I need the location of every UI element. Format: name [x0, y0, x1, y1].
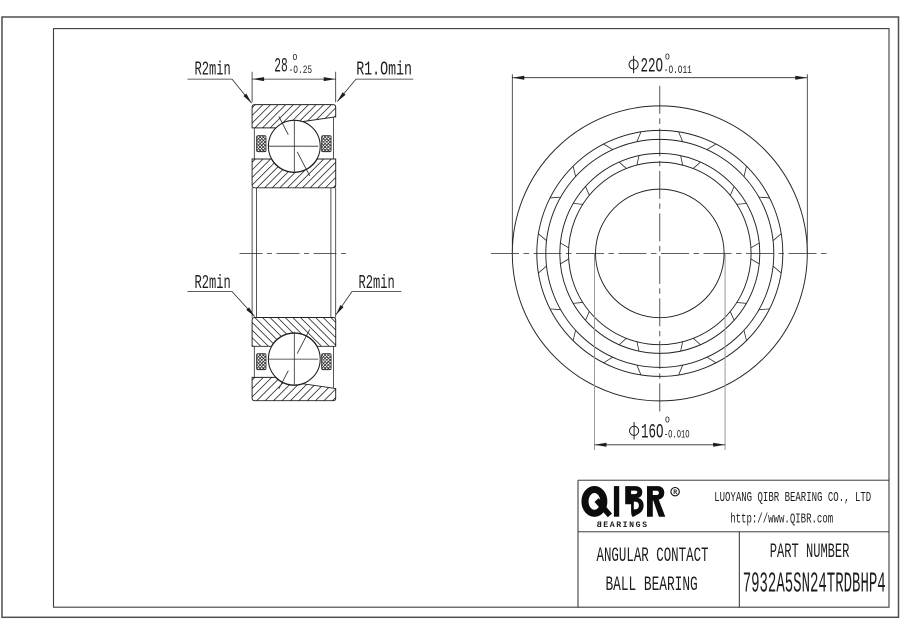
- svg-text:-O.25: -O.25: [289, 65, 313, 77]
- svg-text:22O: 22O: [641, 55, 664, 78]
- svg-text:R2min: R2min: [359, 272, 395, 294]
- svg-text:O: O: [665, 415, 670, 426]
- svg-text:PART NUMBER: PART NUMBER: [770, 541, 850, 564]
- svg-text:BALL BEARING: BALL BEARING: [606, 574, 698, 597]
- svg-text:EARINGS: EARINGS: [603, 521, 648, 530]
- svg-text:R: R: [673, 489, 677, 496]
- svg-text:ANGULAR CONTACT: ANGULAR CONTACT: [597, 545, 709, 568]
- svg-text:R2min: R2min: [195, 272, 231, 294]
- svg-text:R1.Omin: R1.Omin: [356, 58, 412, 80]
- svg-text:R2min: R2min: [195, 58, 231, 80]
- svg-text:B: B: [597, 521, 602, 530]
- svg-text:O: O: [293, 52, 298, 63]
- svg-text:O: O: [665, 52, 670, 63]
- svg-text:-O.O1O: -O.O1O: [664, 429, 690, 441]
- svg-text:28: 28: [274, 56, 288, 79]
- svg-text:16O: 16O: [641, 422, 664, 445]
- svg-text:7932A5SN24TRDBHP4: 7932A5SN24TRDBHP4: [743, 568, 886, 601]
- svg-text:-O.O11: -O.O11: [664, 65, 692, 77]
- svg-text:LUOYANG QIBR BEARING CO., LTD: LUOYANG QIBR BEARING CO., LTD: [714, 490, 871, 506]
- svg-text:http://www.QIBR.com: http://www.QIBR.com: [730, 511, 833, 527]
